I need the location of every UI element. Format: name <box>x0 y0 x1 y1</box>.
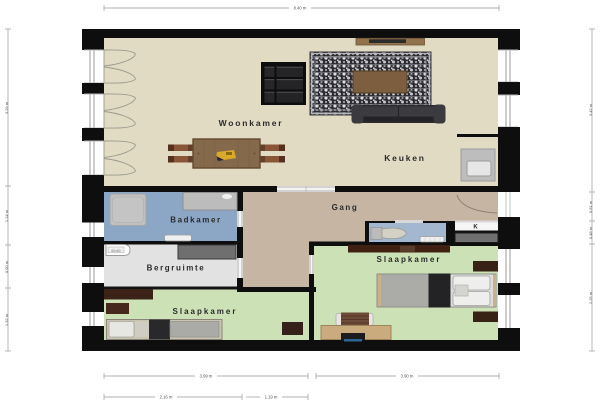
svg-text:60x60: 60x60 <box>111 249 121 253</box>
svg-text:0.61 m: 0.61 m <box>588 200 593 213</box>
svg-text:3.42 m: 3.42 m <box>588 103 593 116</box>
svg-text:K: K <box>473 225 478 231</box>
svg-text:1.24 m: 1.24 m <box>4 209 9 222</box>
svg-text:1.19 m: 1.19 m <box>265 395 278 400</box>
svg-text:3.29 m: 3.29 m <box>4 101 9 114</box>
svg-text:3.99 m: 3.99 m <box>200 374 213 379</box>
svg-text:1.32 m: 1.32 m <box>4 313 9 326</box>
svg-text:Keuken: Keuken <box>384 153 426 163</box>
svg-text:Slaapkamer: Slaapkamer <box>377 255 442 264</box>
svg-text:0.48 m: 0.48 m <box>588 226 593 239</box>
svg-text:2.25 m: 2.25 m <box>588 291 593 304</box>
svg-text:8.40 m: 8.40 m <box>294 6 307 11</box>
svg-text:2.16 m: 2.16 m <box>160 395 173 400</box>
svg-text:Woonkamer: Woonkamer <box>219 118 284 128</box>
svg-text:Badkamer: Badkamer <box>170 216 222 225</box>
svg-text:0.90 m: 0.90 m <box>4 260 9 273</box>
svg-text:Gang: Gang <box>332 203 359 212</box>
svg-text:Slaapkamer: Slaapkamer <box>173 307 238 316</box>
svg-text:Bergruimte: Bergruimte <box>147 263 206 272</box>
svg-text:3.90 m: 3.90 m <box>401 374 414 379</box>
